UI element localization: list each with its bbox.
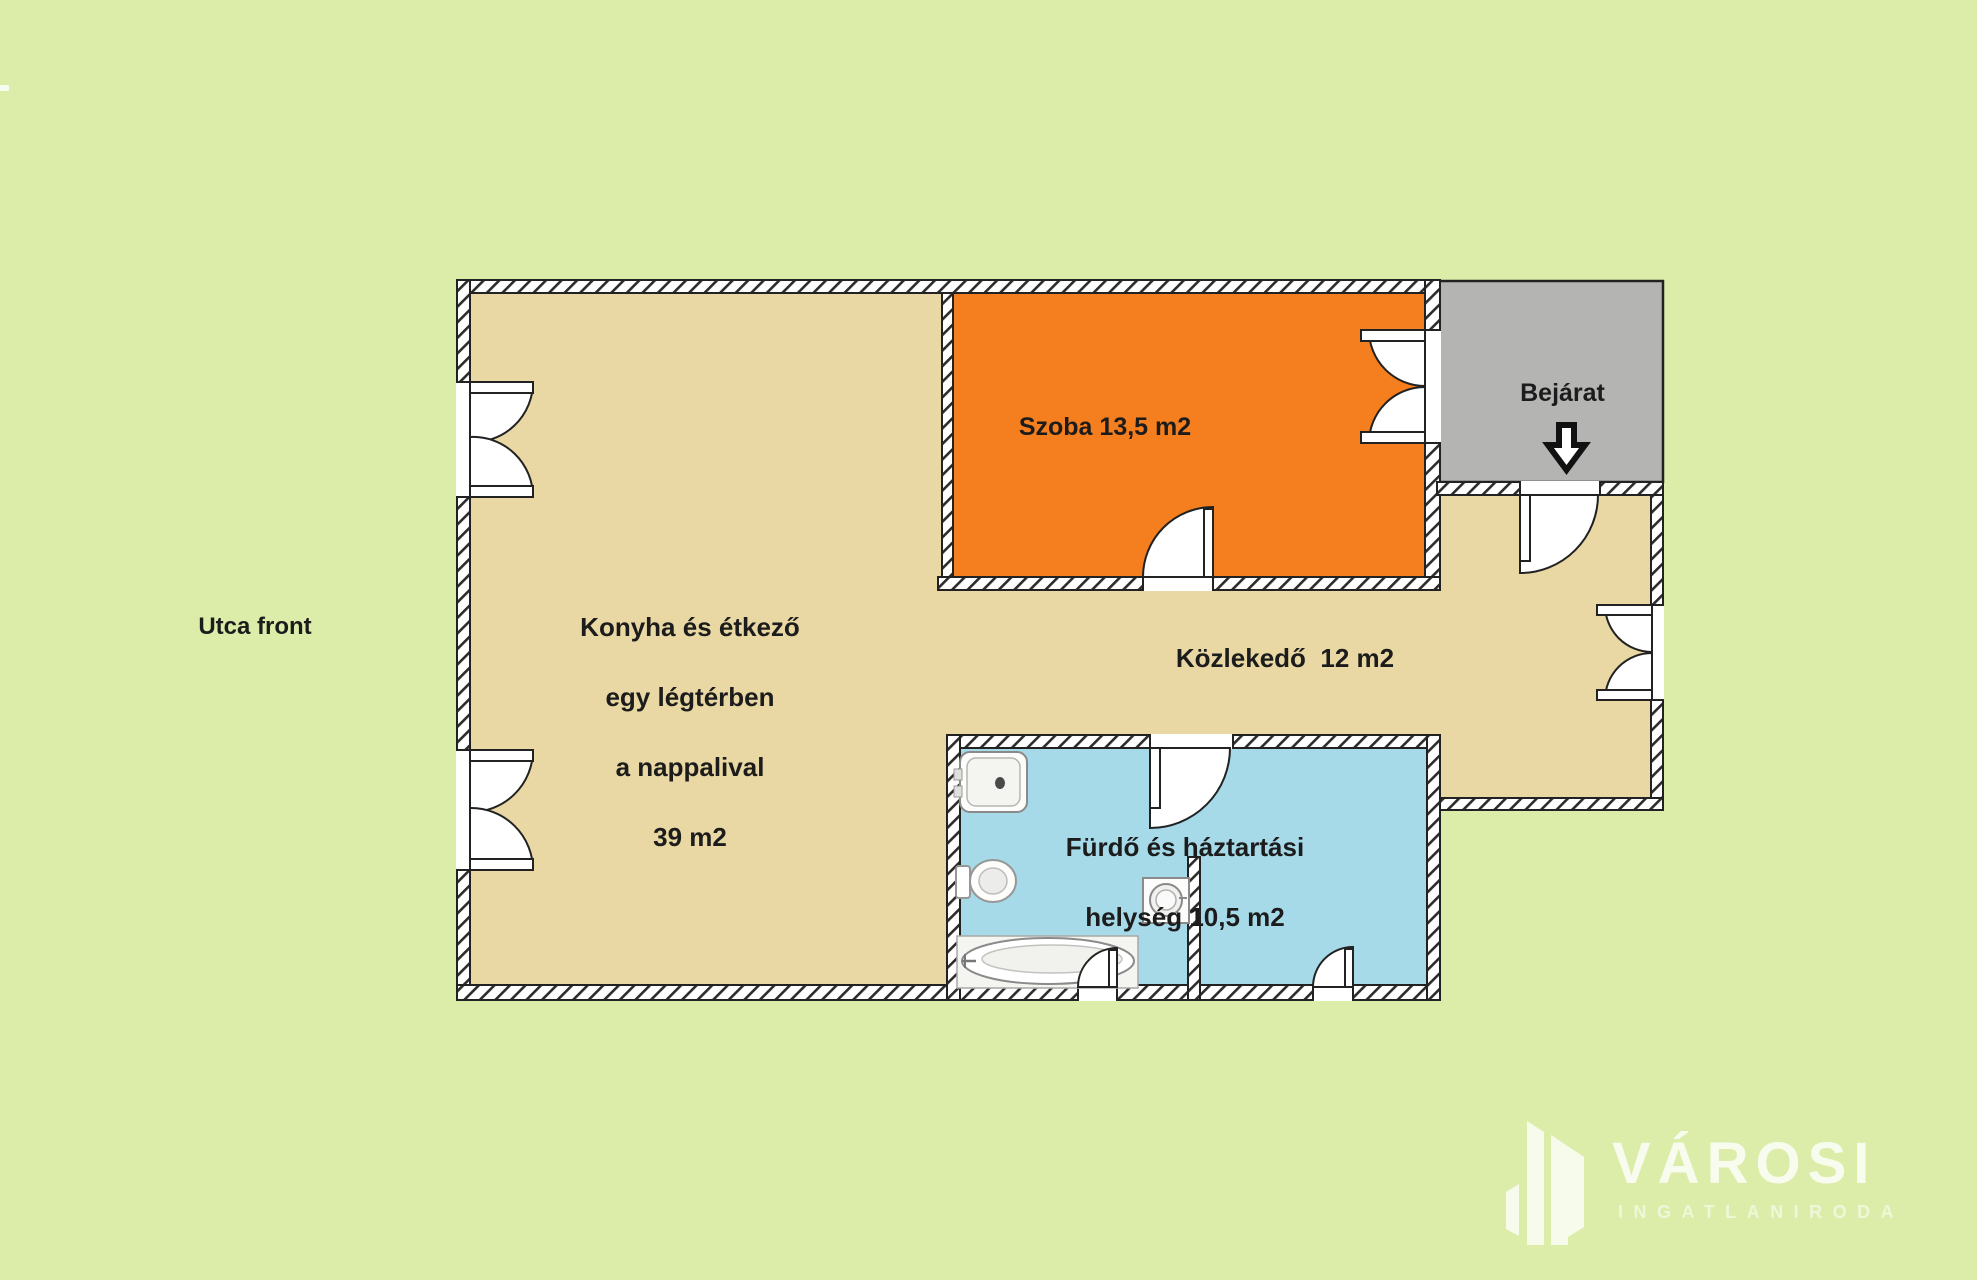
room-label-line: 39 m2 xyxy=(530,820,850,855)
door-opening xyxy=(1150,734,1233,749)
door-opening xyxy=(1143,576,1213,591)
door-panel xyxy=(1361,432,1425,443)
wall-segment xyxy=(457,280,1440,293)
room-label-line: helység 10,5 m2 xyxy=(1025,900,1345,935)
wall-segment xyxy=(1233,735,1440,748)
logo-brand-text: VÁROSI xyxy=(1612,1130,1942,1197)
door-panel xyxy=(1520,495,1530,561)
door-opening xyxy=(1424,330,1441,443)
room-label-szoba: Szoba 13,5 m2 xyxy=(950,413,1260,442)
door-panel xyxy=(470,750,533,761)
wall-segment xyxy=(1427,735,1440,1000)
room-label-line: egy légtérben xyxy=(530,680,850,715)
room-label-entrance: Bejárat xyxy=(1460,379,1665,408)
door-panel xyxy=(470,486,533,497)
door-panel xyxy=(470,382,533,393)
wall-segment xyxy=(1427,798,1663,810)
floor-plan-page: Utca front Konyha és étkező egy légtérbe… xyxy=(0,0,1977,1280)
wall-segment xyxy=(457,497,470,750)
sink-icon xyxy=(954,752,1027,812)
wall-segment xyxy=(1425,280,1440,330)
door-panel xyxy=(470,859,533,870)
door-panel xyxy=(1597,605,1652,615)
wall-segment xyxy=(938,577,1143,590)
door-panel xyxy=(1361,330,1425,341)
wall-segment xyxy=(457,870,470,1000)
street-front-label: Utca front xyxy=(140,613,370,641)
door-panel xyxy=(1204,509,1213,577)
toilet-icon xyxy=(956,860,1016,902)
room-label-bathroom: Fürdő és háztartási helység 10,5 m2 xyxy=(1025,795,1345,970)
door-opening xyxy=(1520,481,1600,496)
room-label-hallway: Közlekedő 12 m2 xyxy=(1130,643,1440,674)
wall-segment xyxy=(1117,985,1313,1000)
door-panel xyxy=(1345,949,1353,987)
room-label-line: Konyha és étkező xyxy=(530,610,850,645)
wall-segment xyxy=(1651,700,1663,810)
wall-segment xyxy=(1437,482,1520,495)
door-panel xyxy=(1597,690,1652,700)
wall-segment xyxy=(1425,443,1440,590)
room-label-kitchen: Konyha és étkező egy légtérben a nappali… xyxy=(530,575,850,890)
wall-segment xyxy=(457,280,470,382)
wall-segment xyxy=(1600,482,1663,495)
wall-segment xyxy=(947,735,1150,748)
wall-segment xyxy=(1651,495,1663,605)
room-label-line: Fürdő és háztartási xyxy=(1025,830,1345,865)
logo-subtitle-text: INGATLANIRODA xyxy=(1618,1202,1948,1223)
buildings-icon xyxy=(1506,1121,1584,1245)
room-label-line: a nappalival xyxy=(530,750,850,785)
wall-segment xyxy=(1213,577,1440,590)
